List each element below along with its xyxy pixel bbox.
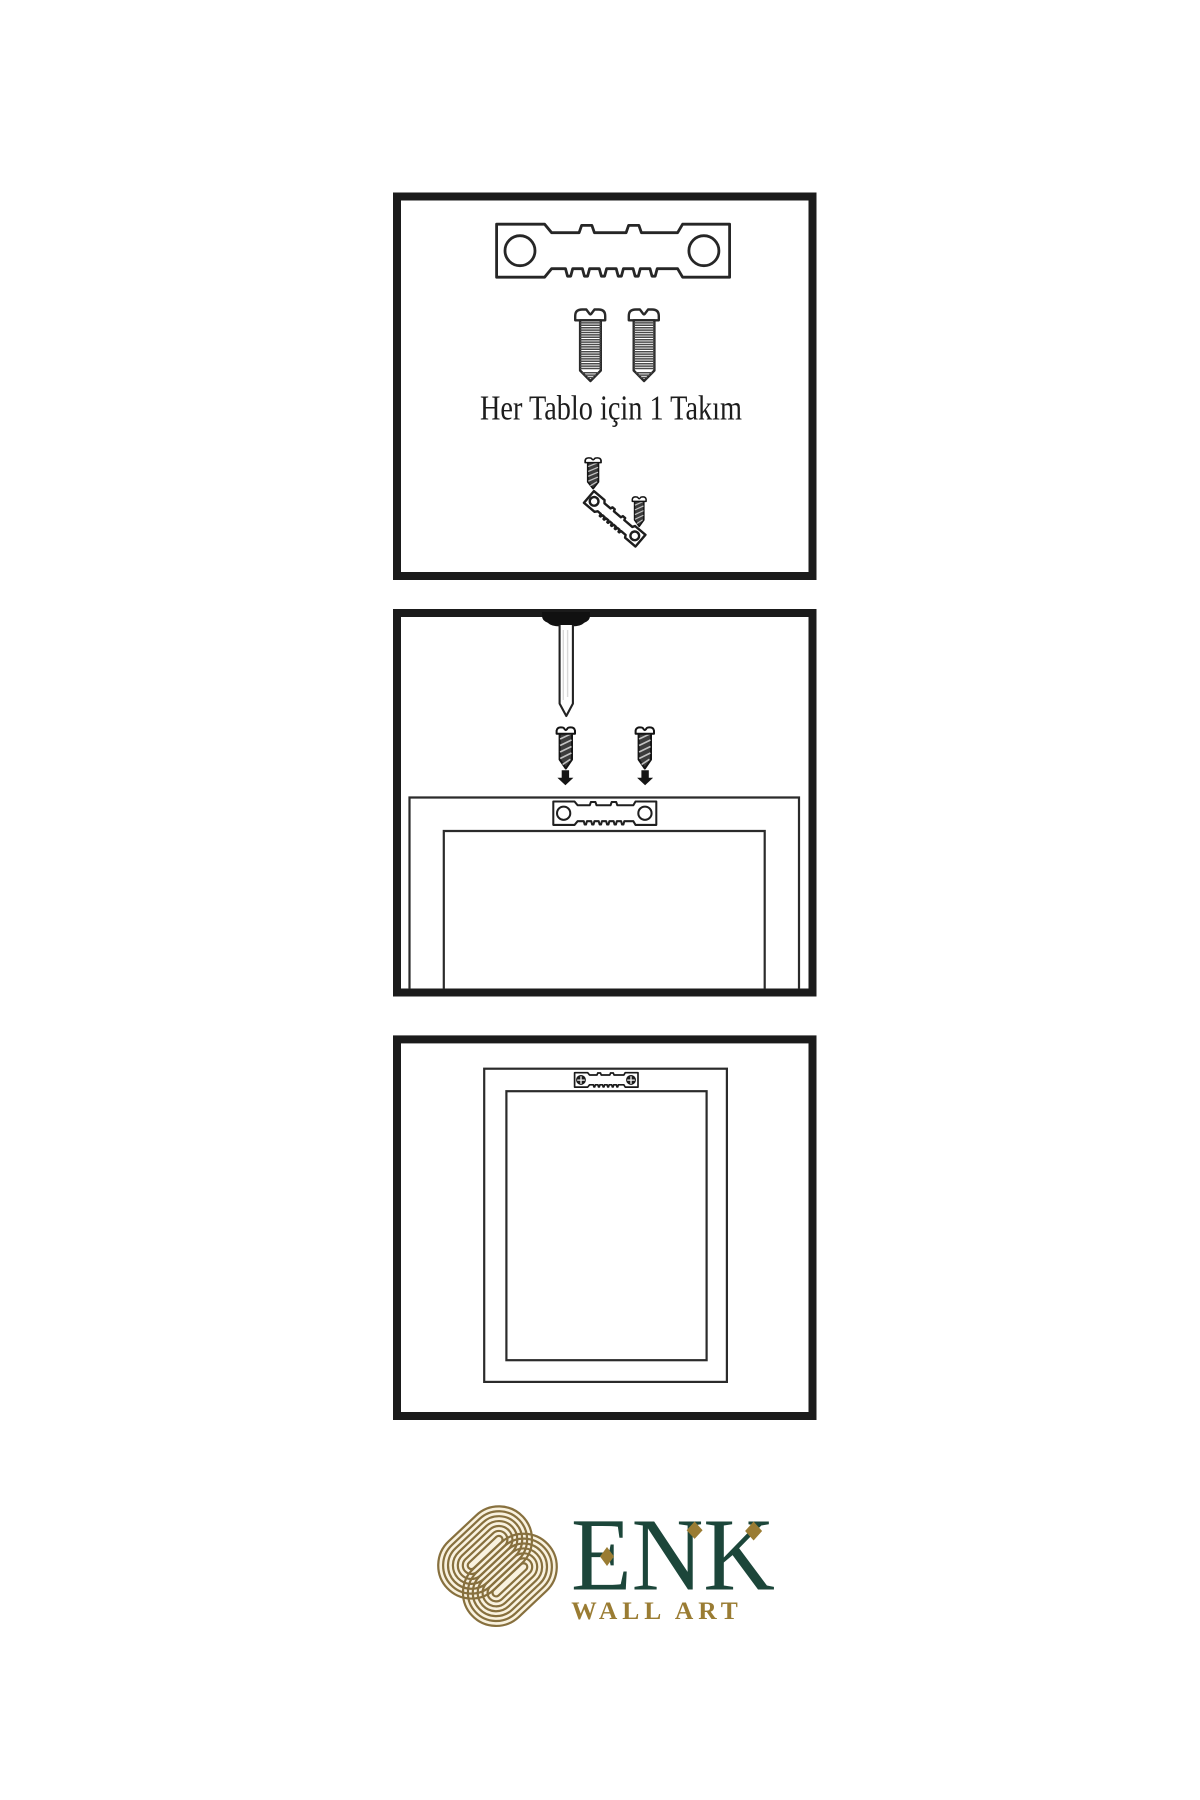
svg-text:Her Tablo için 1 Takım: Her Tablo için 1 Takım (480, 389, 742, 428)
svg-text:WALL ART: WALL ART (571, 1596, 743, 1625)
